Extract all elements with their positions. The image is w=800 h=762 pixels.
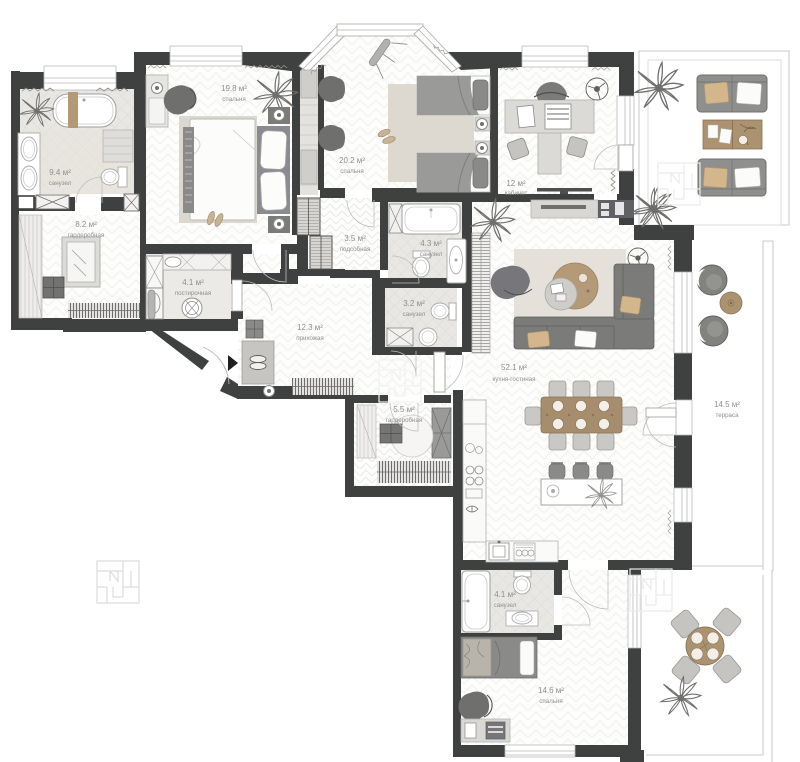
svg-text:санузел: санузел [420, 251, 443, 258]
svg-text:подсобная: подсобная [340, 246, 371, 253]
svg-text:4.3 м²: 4.3 м² [420, 239, 442, 248]
svg-text:12.3 м²: 12.3 м² [297, 323, 323, 332]
svg-text:9.4 м²: 9.4 м² [49, 168, 71, 177]
svg-text:3.5 м²: 3.5 м² [344, 234, 366, 243]
svg-text:12 м²: 12 м² [506, 179, 526, 188]
svg-text:5.5 м²: 5.5 м² [393, 405, 415, 414]
svg-text:спальня: спальня [340, 168, 364, 175]
svg-text:14.5 м²: 14.5 м² [714, 400, 740, 409]
svg-text:3.2 м²: 3.2 м² [403, 299, 425, 308]
svg-text:спальня: спальня [539, 698, 563, 705]
svg-text:санузел: санузел [403, 311, 426, 318]
svg-text:кухня-гостиная: кухня-гостиная [493, 376, 536, 383]
svg-text:52.1 м²: 52.1 м² [501, 363, 527, 372]
svg-text:спальня: спальня [222, 96, 246, 103]
svg-text:гардеробная: гардеробная [68, 232, 105, 239]
svg-text:терраса: терраса [715, 412, 739, 419]
svg-text:прихожая: прихожая [296, 335, 324, 342]
svg-text:гардеробная: гардеробная [386, 417, 423, 424]
svg-text:19.8 м²: 19.8 м² [221, 84, 247, 93]
svg-text:4.1 м²: 4.1 м² [182, 278, 204, 287]
svg-text:санузел: санузел [49, 180, 72, 187]
svg-text:постирочная: постирочная [175, 290, 211, 297]
svg-text:санузел: санузел [494, 602, 517, 609]
svg-text:14.6 м²: 14.6 м² [538, 686, 564, 695]
svg-text:8.2 м²: 8.2 м² [75, 220, 97, 229]
svg-text:кабинет: кабинет [505, 190, 528, 197]
svg-text:20.2 м²: 20.2 м² [339, 156, 365, 165]
svg-text:4.1 м²: 4.1 м² [494, 590, 516, 599]
